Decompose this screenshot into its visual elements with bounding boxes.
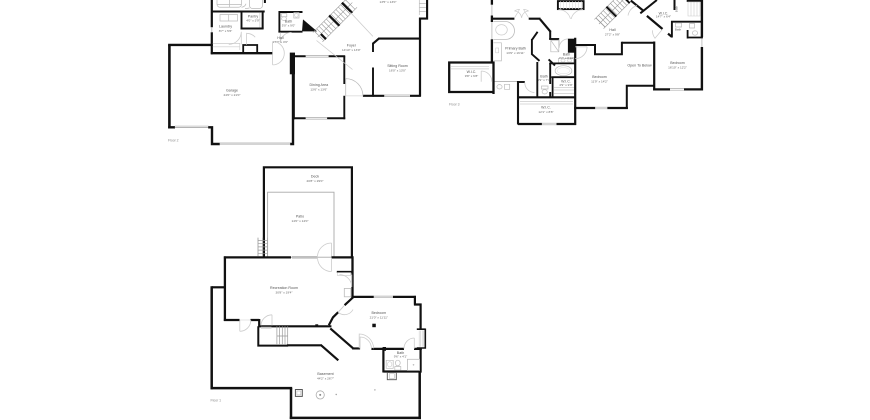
svg-text:Bath: Bath (675, 28, 682, 32)
svg-text:20'8" x 29'0": 20'8" x 29'0" (307, 179, 324, 183)
svg-text:27'2" x 9'8": 27'2" x 9'8" (605, 32, 620, 36)
svg-text:44'2" x 26'7": 44'2" x 26'7" (317, 376, 334, 380)
svg-text:11'9" x 14'2": 11'9" x 14'2" (591, 79, 608, 83)
svg-text:3'9" x 7'7": 3'9" x 7'7" (537, 78, 551, 82)
svg-text:16'0" x 13'0": 16'0" x 13'0" (389, 68, 406, 72)
svg-text:9'6" x 4'1": 9'6" x 4'1" (394, 354, 408, 358)
svg-text:4'9" x 9'9": 4'9" x 9'9" (559, 83, 573, 87)
svg-text:Garage: Garage (226, 89, 238, 93)
svg-text:16'10" x 12'2": 16'10" x 12'2" (668, 65, 687, 69)
svg-text:4'0" x 3'9": 4'0" x 3'9" (246, 19, 260, 23)
svg-text:8'7" x 5'6": 8'7" x 5'6" (219, 29, 233, 33)
svg-text:30'8" x 19'4": 30'8" x 19'4" (276, 290, 293, 294)
svg-text:14'0" x 14'0": 14'0" x 14'0" (292, 219, 309, 223)
svg-text:14'10" x 13'0": 14'10" x 13'0" (342, 48, 361, 52)
svg-text:14'7" x 6'4": 14'7" x 6'4" (656, 15, 671, 19)
svg-text:12'1" x 8'8": 12'1" x 8'8" (538, 110, 553, 114)
svg-text:13'6" x 13'6": 13'6" x 13'6" (310, 87, 327, 91)
svg-text:Bath: Bath (675, 6, 679, 13)
svg-text:Floor 2: Floor 2 (168, 139, 179, 143)
svg-text:Open To Below: Open To Below (627, 64, 652, 68)
svg-text:5'0" x 9'0": 5'0" x 9'0" (282, 24, 296, 28)
svg-text:7'7" x 8'10": 7'7" x 8'10" (559, 56, 574, 60)
svg-text:Floor 1: Floor 1 (211, 399, 222, 403)
svg-text:9'8" x 6'8": 9'8" x 6'8" (465, 74, 479, 78)
svg-text:24'0" x 21'0": 24'0" x 21'0" (224, 93, 241, 97)
svg-text:21'0" x 11'11": 21'0" x 11'11" (370, 315, 388, 319)
svg-text:Floor 3: Floor 3 (449, 103, 460, 107)
svg-text:13'5" x 13'0": 13'5" x 13'0" (380, 0, 397, 4)
svg-text:13'9" x 16'11": 13'9" x 16'11" (506, 51, 524, 55)
